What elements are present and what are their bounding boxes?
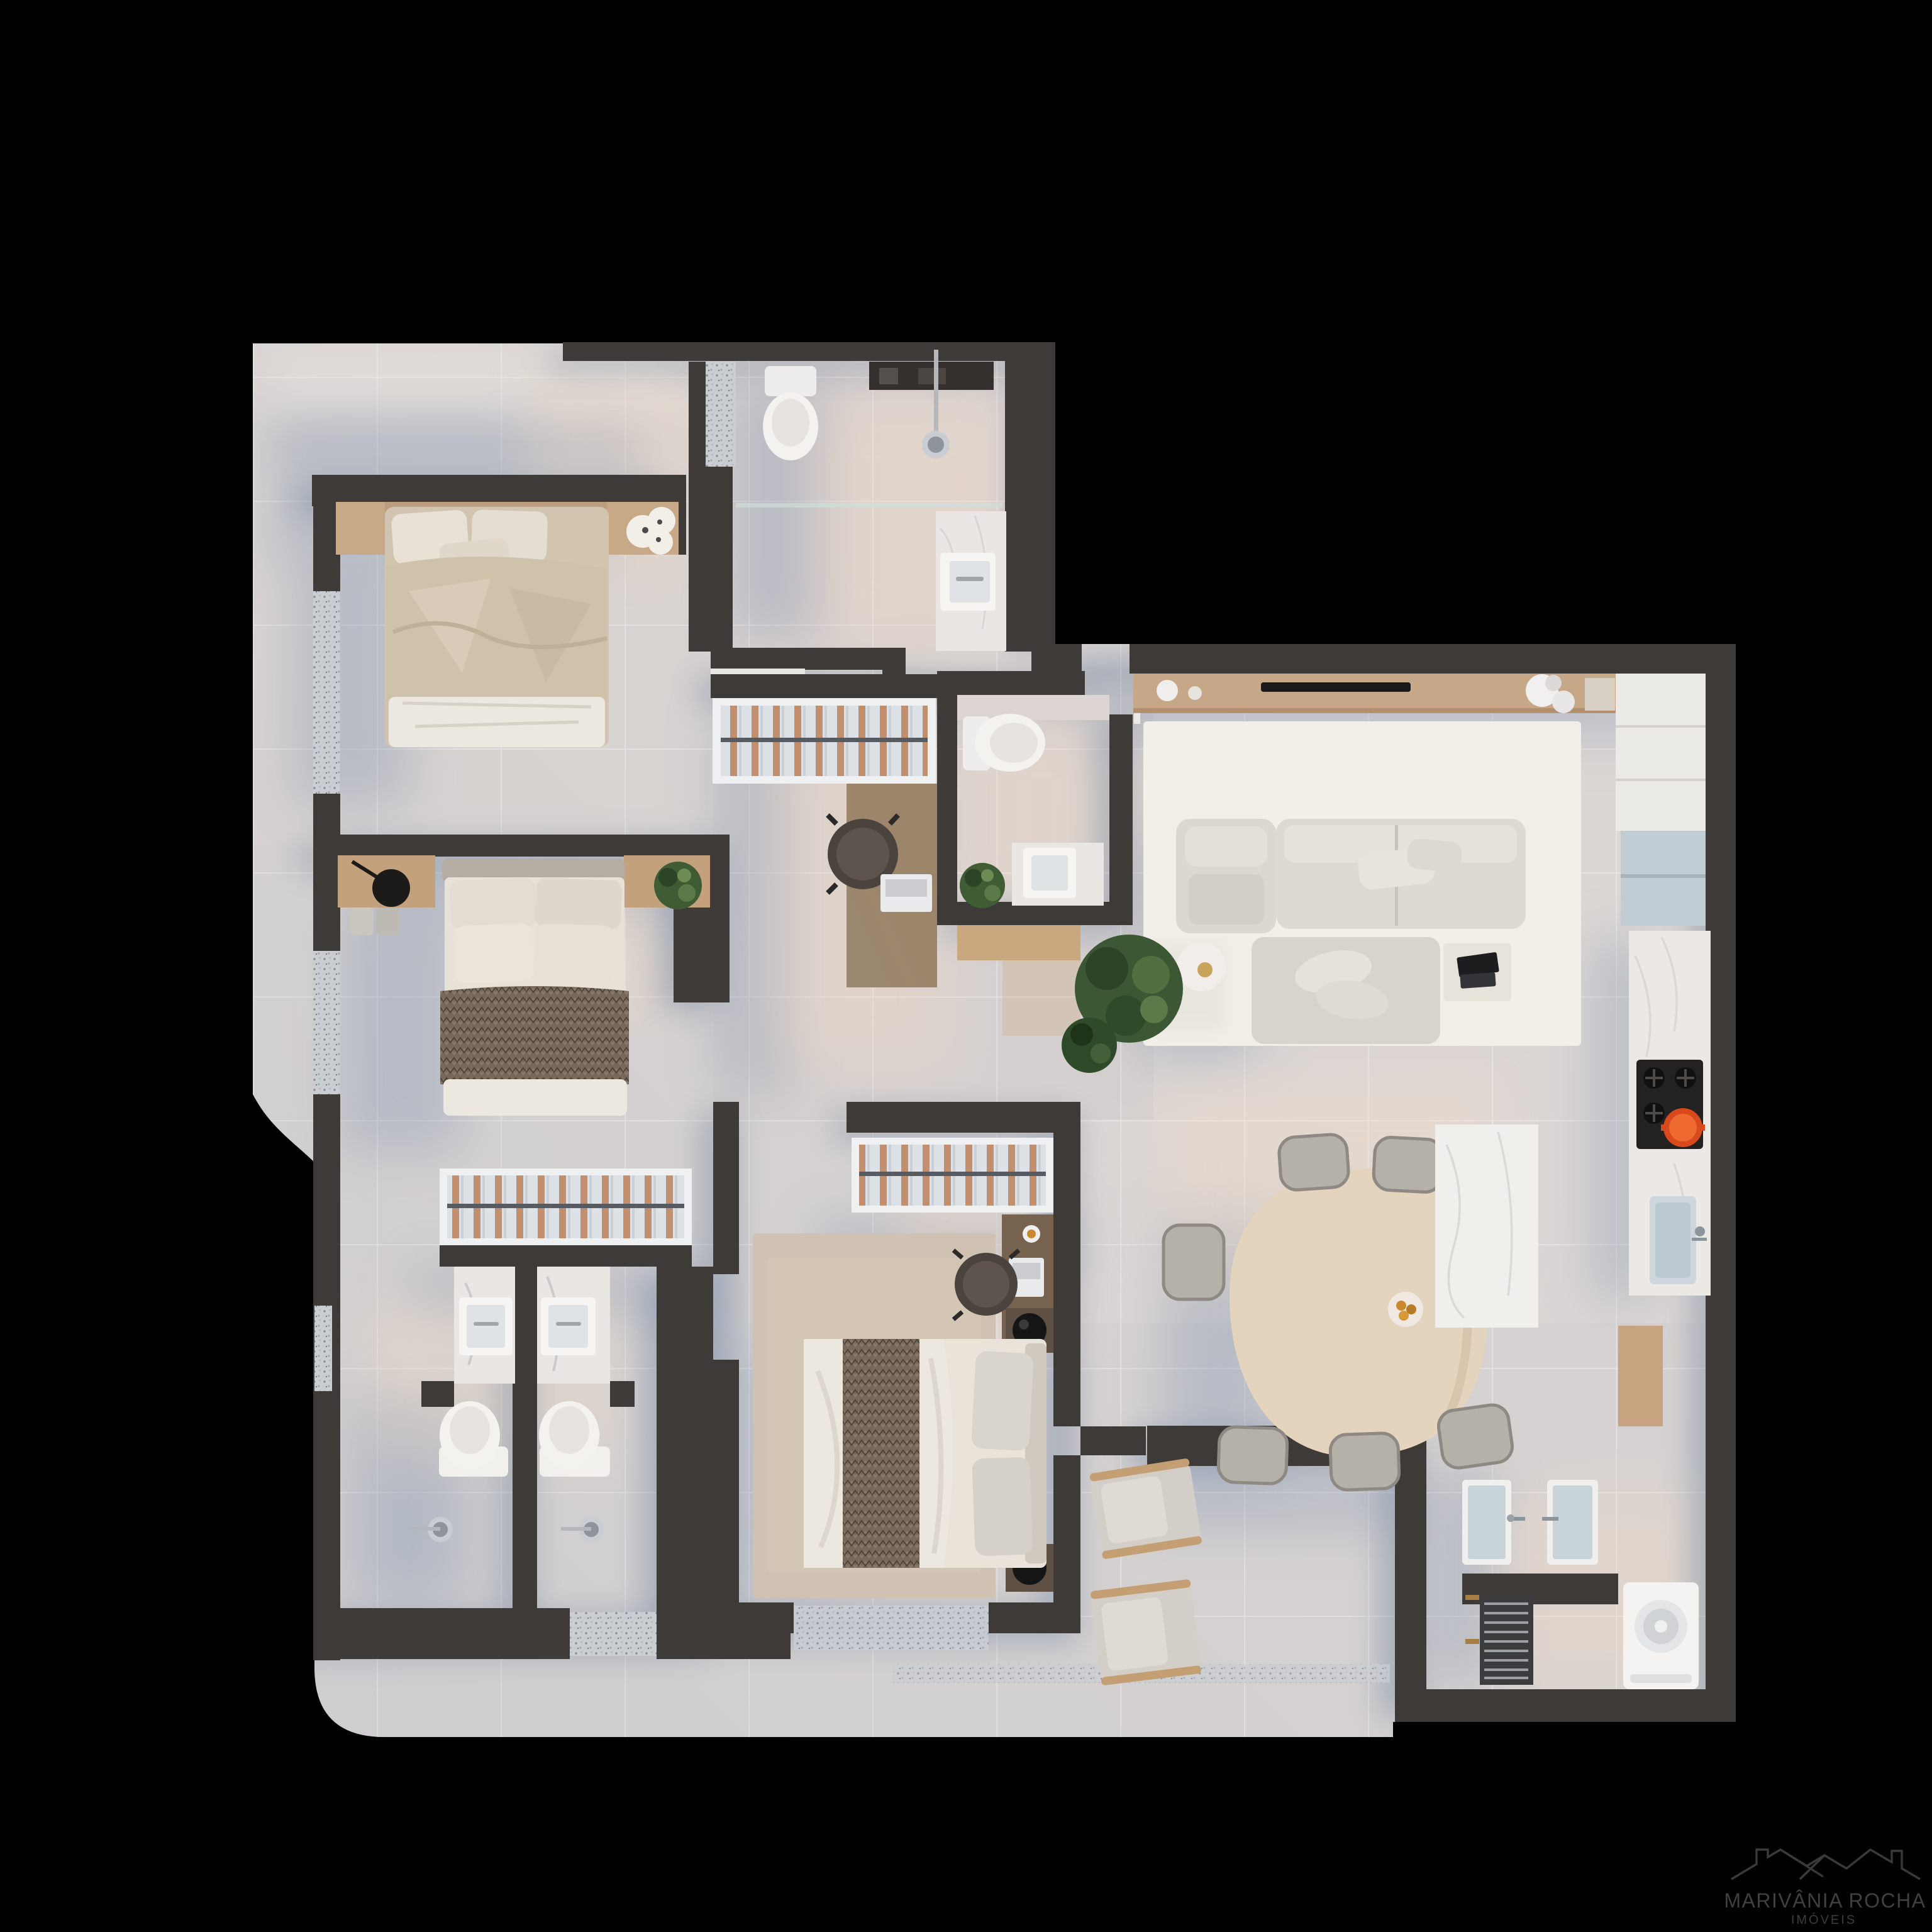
svg-text:MARIVÂNIA ROCHA: MARIVÂNIA ROCHA xyxy=(1724,1889,1926,1912)
svg-text:IMÓVEIS: IMÓVEIS xyxy=(1791,1913,1857,1927)
